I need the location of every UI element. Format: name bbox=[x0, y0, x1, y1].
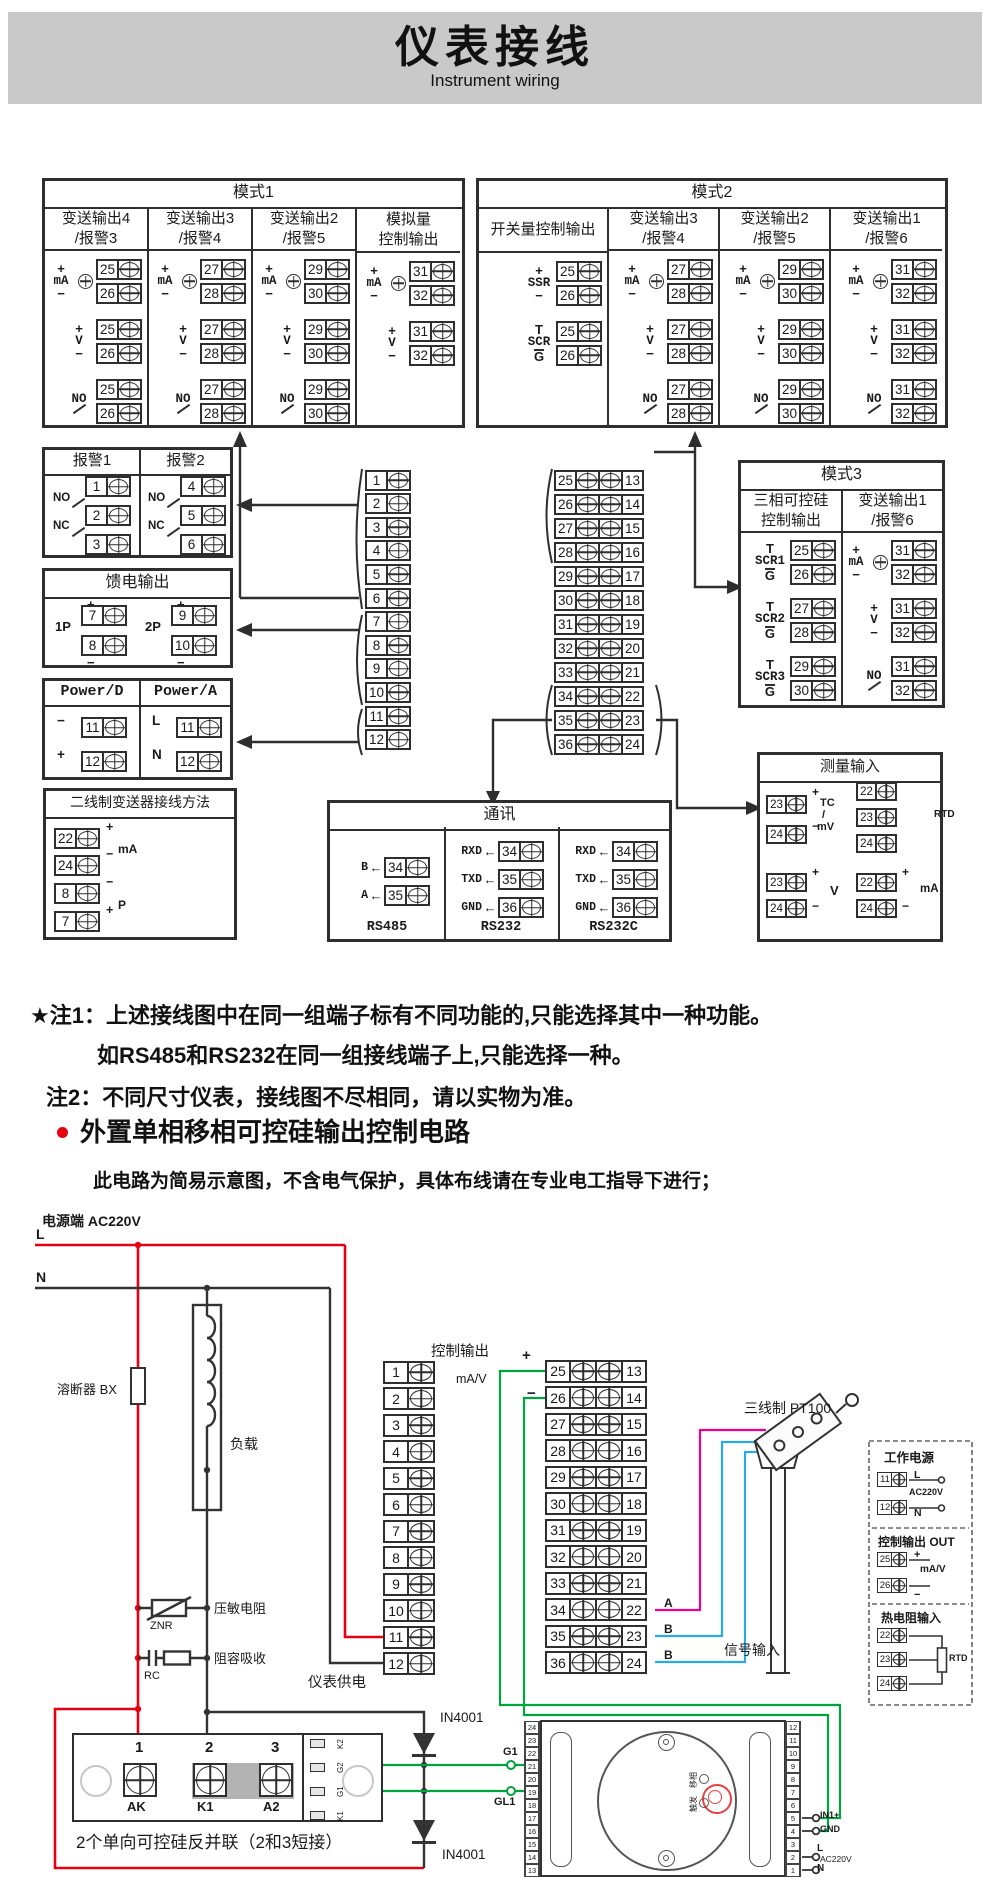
adjust-label: 触发 bbox=[688, 1796, 699, 1812]
terminal-screw-icon bbox=[386, 588, 411, 609]
terminal: 30 bbox=[304, 283, 350, 304]
terminal-number: 10 bbox=[365, 682, 388, 703]
polarity-bottom: − bbox=[757, 348, 765, 359]
terminal-number: 31 bbox=[891, 379, 914, 400]
column-header: 变送输出2/报警5 bbox=[253, 209, 355, 251]
column-title: 控制输出 bbox=[761, 511, 821, 531]
terminal-number: 22 bbox=[856, 782, 877, 801]
mode1-box: 模式1变送输出4/报警3+mA−2526+V−2526NO2526变送输出3/报… bbox=[42, 178, 465, 428]
signal-type-label: SCR bbox=[528, 335, 551, 349]
terminal: 22 bbox=[877, 1628, 907, 1643]
trigger-terminal: 15 bbox=[525, 1838, 539, 1851]
mode2-box-column: 开关量控制输出+SSR−2526TSCRG2526 bbox=[479, 209, 609, 427]
terminal: 5 bbox=[383, 1467, 435, 1490]
terminal-number: 10 bbox=[383, 1599, 409, 1622]
two-wire-title: 二线制变送器接线方法 bbox=[46, 791, 234, 819]
column-title: 三相可控硅 bbox=[753, 491, 828, 511]
terminal-number: 5 bbox=[180, 505, 203, 526]
terminal-screw-icon bbox=[407, 1361, 435, 1384]
scr-terminal-screw-icon bbox=[193, 1763, 227, 1797]
terminal: 11 bbox=[176, 717, 222, 738]
terminal-number: 27 bbox=[545, 1413, 571, 1436]
terminal: 25 bbox=[556, 321, 602, 342]
terminal: 28 bbox=[200, 343, 246, 364]
terminal-number: 28 bbox=[667, 283, 690, 304]
terminal-screw-icon bbox=[598, 614, 623, 635]
current-source-icon bbox=[873, 274, 888, 289]
gate-pad bbox=[310, 1739, 325, 1748]
comm-standard-label: RS485 bbox=[330, 920, 444, 935]
terminal-screw-icon bbox=[106, 534, 131, 555]
gate-pad-label: K1 bbox=[336, 1811, 345, 1821]
terminal: 22 bbox=[856, 873, 897, 892]
terminal-screw-icon bbox=[799, 403, 824, 424]
terminal: 5 bbox=[365, 564, 411, 585]
terminal: 11 bbox=[81, 717, 127, 738]
terminal: 27 bbox=[200, 319, 246, 340]
pt100-label: 三线制 PT100 bbox=[744, 1398, 831, 1418]
comm-row: TXD←35 bbox=[452, 869, 544, 890]
terminal: 35 bbox=[498, 869, 544, 890]
terminal-number: 18 bbox=[621, 1492, 647, 1515]
terminal: 12 bbox=[365, 729, 411, 750]
terminal-number: 29 bbox=[545, 1466, 571, 1489]
terminal-screw-icon bbox=[407, 1626, 435, 1649]
terminal: 28 bbox=[200, 283, 246, 304]
polarity-bottom: − bbox=[852, 288, 860, 299]
instrument-wiring-page: 仪表接线 Instrument wiring bbox=[0, 0, 990, 1898]
strip-row: 3119 bbox=[554, 614, 644, 635]
terminal: 31 bbox=[409, 321, 455, 342]
terminal-screw-icon bbox=[811, 598, 836, 619]
terminal-screw-icon bbox=[595, 1545, 623, 1568]
terminal-number: 30 bbox=[778, 283, 801, 304]
terminal: 11 bbox=[877, 1472, 907, 1487]
strip-row: 3321 bbox=[554, 662, 644, 683]
polarity-top: + bbox=[283, 323, 291, 334]
trigger-n-label: N bbox=[817, 1863, 824, 1874]
terminal: 27 bbox=[200, 379, 246, 400]
column-title: /报警6 bbox=[865, 229, 908, 249]
arrow-left-icon: ← bbox=[482, 844, 498, 859]
trigger-module: 移相触发 bbox=[540, 1720, 786, 1877]
terminal-number: 36 bbox=[545, 1651, 571, 1674]
power-polarity: L bbox=[152, 713, 160, 728]
terminal-screw-icon bbox=[201, 534, 226, 555]
terminal-screw-icon bbox=[595, 1386, 623, 1409]
strip-row: 2715 bbox=[554, 518, 644, 539]
terminal: 31 bbox=[891, 319, 937, 340]
diode-label: IN4001 bbox=[440, 1710, 484, 1725]
terminal-number: 25 bbox=[790, 540, 813, 561]
terminal-number: 21 bbox=[621, 662, 644, 683]
terminal-screw-icon bbox=[575, 494, 600, 515]
gate-pad bbox=[310, 1787, 325, 1796]
strip-row: 3523 bbox=[545, 1625, 647, 1648]
terminal-number: 34 bbox=[384, 857, 407, 878]
terminal-screw-icon bbox=[875, 899, 897, 918]
terminal: 29 bbox=[790, 656, 836, 677]
trigger-terminal: 2 bbox=[786, 1851, 800, 1864]
mv-label: mV bbox=[817, 821, 834, 833]
terminal-screw-icon bbox=[575, 686, 600, 707]
terminal: 23 bbox=[766, 795, 807, 814]
polarity-top: + bbox=[646, 323, 654, 334]
terminal-number: 4 bbox=[180, 476, 203, 497]
power-box: Power/DPower/A−11+12L11N12 bbox=[42, 678, 233, 780]
terminal-number: 29 bbox=[790, 656, 813, 677]
terminal-screw-icon bbox=[106, 505, 131, 526]
output-section: TSCR2G2728 bbox=[741, 591, 841, 649]
comm-row: GND←36 bbox=[452, 897, 544, 918]
terminal-number: 14 bbox=[621, 494, 644, 515]
terminal-screw-icon bbox=[386, 470, 411, 491]
terminal-screw-icon bbox=[912, 622, 937, 643]
terminal-screw-icon bbox=[117, 343, 142, 364]
terminal: 25 bbox=[877, 1552, 907, 1567]
terminal-screw-icon bbox=[405, 857, 430, 878]
terminal-number: 29 bbox=[304, 259, 327, 280]
terminal-screw-icon bbox=[386, 706, 411, 727]
power-d-title: Power/D bbox=[45, 681, 141, 705]
strip-row: 3220 bbox=[545, 1545, 647, 1568]
comm-signal-label: GND bbox=[566, 901, 596, 914]
terminal-screw-icon bbox=[912, 259, 937, 280]
terminal-screw-icon bbox=[102, 717, 127, 738]
mode2-box-column: 变送输出1/报警6+mA−3132+V−3132NO3132 bbox=[831, 209, 942, 427]
terminal-screw-icon bbox=[598, 470, 623, 491]
terminal-number: 27 bbox=[667, 379, 690, 400]
terminal-screw-icon bbox=[569, 1466, 597, 1489]
terminal: 27 bbox=[667, 259, 713, 280]
switch-icon bbox=[72, 498, 85, 508]
terminal-screw-icon bbox=[407, 1440, 435, 1463]
terminal-screw-icon bbox=[117, 379, 142, 400]
terminal-screw-icon bbox=[117, 259, 142, 280]
polarity-top: + bbox=[739, 263, 747, 274]
comm-signal-label: RXD bbox=[566, 845, 596, 858]
mode2-box: 模式2开关量控制输出+SSR−2526TSCRG2526变送输出3/报警4+mA… bbox=[476, 178, 948, 428]
terminal-number: 27 bbox=[200, 319, 223, 340]
output-section: NO3132 bbox=[843, 649, 942, 707]
terminal-screw-icon bbox=[785, 873, 807, 892]
polarity-minus: − bbox=[527, 1385, 536, 1402]
terminal-screw-icon bbox=[912, 598, 937, 619]
terminal-number: 25 bbox=[545, 1360, 571, 1383]
terminal: 10 bbox=[383, 1599, 435, 1622]
v-label: V bbox=[830, 883, 839, 898]
trigger-terminal: 18 bbox=[525, 1799, 539, 1812]
comm-row: A←35 bbox=[338, 885, 430, 906]
terminal-number: 30 bbox=[778, 403, 801, 424]
terminal-screw-icon bbox=[598, 662, 623, 683]
terminal: 27 bbox=[790, 598, 836, 619]
terminal-screw-icon bbox=[912, 319, 937, 340]
arrow-left-icon: ← bbox=[368, 888, 384, 903]
terminal-number: 27 bbox=[200, 259, 223, 280]
terminal-screw-icon bbox=[197, 751, 222, 772]
terminal-number: 31 bbox=[891, 540, 914, 561]
terminal: 23 bbox=[856, 808, 897, 827]
strip-row: 2917 bbox=[545, 1466, 647, 1489]
terminal-screw-icon bbox=[221, 283, 246, 304]
terminal-number: 32 bbox=[891, 283, 914, 304]
terminal-screw-icon bbox=[386, 564, 411, 585]
mode1-box-title: 模式1 bbox=[45, 181, 462, 209]
polarity-bottom: − bbox=[370, 290, 378, 301]
terminal-screw-icon bbox=[595, 1572, 623, 1595]
comm-signal-label: GND bbox=[452, 901, 482, 914]
note-1: ★注1：上述接线图中在同一组端子标有不同功能的,只能选择其中一种功能。 bbox=[30, 998, 772, 1030]
terminal-number: 31 bbox=[891, 656, 914, 677]
mode3-box-column: 变送输出1/报警6+mA−3132+V−3132NO3132 bbox=[843, 491, 942, 707]
no-label: NO bbox=[148, 492, 165, 504]
terminal: 30 bbox=[778, 403, 824, 424]
terminal-screw-icon bbox=[519, 841, 544, 862]
tc-slash: / bbox=[822, 809, 825, 821]
terminal: 24 bbox=[856, 834, 897, 853]
terminal: 22 bbox=[856, 782, 897, 801]
terminal-screw-icon bbox=[785, 899, 807, 918]
terminal-screw-icon bbox=[912, 403, 937, 424]
mounting-hole-icon bbox=[342, 1765, 374, 1797]
rtd-label: RTD bbox=[934, 809, 955, 820]
terminal-screw-icon bbox=[799, 283, 824, 304]
terminal-screw-icon bbox=[595, 1598, 623, 1621]
terminal: 32 bbox=[409, 345, 455, 366]
terminal-screw-icon bbox=[912, 564, 937, 585]
column-header: 变送输出1/报警6 bbox=[843, 491, 942, 533]
terminal-number: 15 bbox=[621, 518, 644, 539]
terminal: 25 bbox=[96, 319, 142, 340]
terminal-number: 13 bbox=[621, 470, 644, 491]
terminal-screw-icon bbox=[811, 564, 836, 585]
terminal: 28 bbox=[667, 343, 713, 364]
terminal-screw-icon bbox=[598, 566, 623, 587]
terminal-number: 30 bbox=[778, 343, 801, 364]
terminal-screw-icon bbox=[325, 283, 350, 304]
gate-pad bbox=[310, 1811, 325, 1820]
terminal-number: 3 bbox=[383, 1414, 409, 1437]
terminal-screw-icon bbox=[192, 605, 217, 626]
terminal-number: 34 bbox=[554, 686, 577, 707]
terminal-screw-icon bbox=[912, 283, 937, 304]
comm-row: GND←36 bbox=[566, 897, 658, 918]
arrow-left-icon: ← bbox=[482, 900, 498, 915]
polarity-top: + bbox=[535, 265, 543, 276]
rc-code: RC bbox=[144, 1670, 160, 1682]
terminal: 29 bbox=[304, 319, 350, 340]
trigger-terminal: 13 bbox=[525, 1864, 539, 1877]
terminal-number: 8 bbox=[383, 1546, 409, 1569]
terminal-screw-icon bbox=[386, 540, 411, 561]
terminal-number: 27 bbox=[200, 379, 223, 400]
terminal: 24 bbox=[766, 899, 807, 918]
terminal-screw-icon bbox=[75, 828, 100, 849]
terminal-number: 34 bbox=[498, 841, 521, 862]
terminal-number: 2 bbox=[383, 1387, 409, 1410]
terminal-number: 26 bbox=[556, 285, 579, 306]
varistor-label: 压敏电阻 bbox=[214, 1598, 266, 1617]
terminal-number: 29 bbox=[778, 319, 801, 340]
scr-terminal-screw-icon bbox=[259, 1763, 293, 1797]
vent-slot bbox=[550, 1732, 572, 1867]
terminal-number: 30 bbox=[554, 590, 577, 611]
terminal-screw-icon bbox=[598, 590, 623, 611]
terminal-screw-icon bbox=[221, 379, 246, 400]
adjust-pot-icon bbox=[699, 1774, 709, 1784]
terminal-number: 9 bbox=[365, 658, 388, 679]
column-title: 变送输出2 bbox=[270, 209, 338, 229]
adjust-label: 移相 bbox=[688, 1772, 699, 1788]
terminal-screw-icon bbox=[75, 911, 100, 932]
terminal: 5 bbox=[180, 505, 226, 526]
terminal-number: 30 bbox=[304, 403, 327, 424]
terminal-screw-icon bbox=[891, 1628, 907, 1643]
mode3-box-column: 三相可控硅控制输出TSCR1G2526TSCR2G2728TSCR3G2930 bbox=[741, 491, 843, 707]
output-section: NO2930 bbox=[253, 371, 355, 431]
polarity-top: + bbox=[628, 263, 636, 274]
strip-row: 3220 bbox=[554, 638, 644, 659]
polarity: + bbox=[902, 865, 909, 879]
mode3-box: 模式3三相可控硅控制输出TSCR1G2526TSCR2G2728TSCR3G29… bbox=[738, 460, 945, 708]
column-title: 变送输出3 bbox=[629, 209, 697, 229]
terminal-screw-icon bbox=[575, 710, 600, 731]
terminal: 26 bbox=[96, 403, 142, 424]
mav-label: mA/V bbox=[920, 1564, 946, 1575]
comm-standard-label: RS232 bbox=[444, 920, 558, 935]
polarity: + bbox=[106, 820, 113, 834]
terminal-screw-icon bbox=[598, 734, 623, 755]
terminal-number: 30 bbox=[545, 1492, 571, 1515]
terminal: 6 bbox=[383, 1493, 435, 1516]
terminal-number: 28 bbox=[554, 542, 577, 563]
signal-type-label: SCR1 bbox=[755, 554, 785, 568]
strip-row: 2816 bbox=[554, 542, 644, 563]
terminal-screw-icon bbox=[192, 635, 217, 656]
mav-unit-label: mA/V bbox=[456, 1372, 487, 1386]
terminal: 7 bbox=[81, 605, 127, 626]
scr-terminal-name: AK bbox=[127, 1799, 146, 1814]
terminal-screw-icon bbox=[595, 1519, 623, 1542]
terminal: 36 bbox=[498, 897, 544, 918]
terminal-screw-icon bbox=[405, 885, 430, 906]
terminal-number: 19 bbox=[621, 1519, 647, 1542]
terminal-screw-icon bbox=[407, 1414, 435, 1437]
terminal: 32 bbox=[891, 283, 937, 304]
terminal-number: 7 bbox=[81, 605, 104, 626]
wire-b-label: B bbox=[664, 1648, 673, 1662]
trigger-terminal: 1 bbox=[786, 1864, 800, 1877]
terminal-number: 30 bbox=[304, 343, 327, 364]
terminal-number: 12 bbox=[176, 751, 199, 772]
terminal-screw-icon bbox=[595, 1439, 623, 1462]
terminal-number: 22 bbox=[621, 686, 644, 707]
terminal-screw-icon bbox=[407, 1520, 435, 1543]
terminal: 11 bbox=[365, 706, 411, 727]
terminal-number: 24 bbox=[856, 834, 877, 853]
terminal-screw-icon bbox=[569, 1413, 597, 1436]
nc-label: NC bbox=[148, 520, 165, 532]
terminal-screw-icon bbox=[325, 259, 350, 280]
arrow-left-icon: ← bbox=[596, 900, 612, 915]
polarity: − bbox=[914, 1589, 920, 1601]
gate-pad-label: G1 bbox=[336, 1786, 345, 1797]
gate-wire-label: G1 bbox=[503, 1746, 518, 1758]
mode3-box-title: 模式3 bbox=[741, 463, 942, 491]
terminal-screw-icon bbox=[799, 319, 824, 340]
ma-label: mA bbox=[920, 883, 939, 895]
terminal: 23 bbox=[766, 873, 807, 892]
comm-group: RXD←34TXD←35GND←36RS232C bbox=[558, 827, 669, 939]
terminal: 1 bbox=[85, 476, 131, 497]
polarity-top: + bbox=[870, 602, 878, 613]
polarity-bottom: − bbox=[628, 288, 636, 299]
terminal: 9 bbox=[365, 658, 411, 679]
arrow-left-icon: ← bbox=[482, 872, 498, 887]
terminal-number: 20 bbox=[621, 1545, 647, 1568]
terminal-screw-icon bbox=[598, 518, 623, 539]
trigger-terminal: 23 bbox=[525, 1734, 539, 1747]
note-2: 注2：不同尺寸仪表，接线图不尽相同，请以实物为准。 bbox=[46, 1080, 586, 1112]
ma-label: mA bbox=[118, 842, 137, 856]
terminal: 34 bbox=[612, 841, 658, 862]
scr-terminal-name: A2 bbox=[263, 1799, 280, 1814]
mounting-hole-icon bbox=[80, 1765, 112, 1797]
column-title: /报警3 bbox=[75, 229, 118, 249]
terminal-number: 26 bbox=[790, 564, 813, 585]
strip-row: 3422 bbox=[554, 686, 644, 707]
terminal-screw-icon bbox=[386, 611, 411, 632]
trigger-terminal: 9 bbox=[786, 1760, 800, 1773]
terminal-number: 11 bbox=[365, 706, 388, 727]
terminal-number: 18 bbox=[621, 590, 644, 611]
terminal-screw-icon bbox=[430, 261, 455, 282]
column-title: 变送输出4 bbox=[62, 209, 130, 229]
terminal-screw-icon bbox=[875, 808, 897, 827]
alarm2-title: 报警2 bbox=[141, 450, 230, 474]
terminal-screw-icon bbox=[386, 635, 411, 656]
strip-row: 3321 bbox=[545, 1572, 647, 1595]
signal-type-label: SCR2 bbox=[755, 612, 785, 626]
terminal: 3 bbox=[383, 1414, 435, 1437]
column-header: 模拟量控制输出 bbox=[357, 209, 460, 253]
terminal-number: 32 bbox=[891, 564, 914, 585]
terminal: 31 bbox=[891, 379, 937, 400]
power-source-label: 电源端 AC220V bbox=[42, 1211, 141, 1231]
tc-label: TC bbox=[820, 797, 835, 809]
terminal-screw-icon bbox=[221, 259, 246, 280]
terminal-number: 23 bbox=[621, 1625, 647, 1648]
strip-row: 3624 bbox=[545, 1651, 647, 1674]
terminal-number: 17 bbox=[621, 566, 644, 587]
terminal-screw-icon bbox=[221, 403, 246, 424]
polarity-bottom: G bbox=[765, 626, 775, 639]
terminal-number: 21 bbox=[621, 1572, 647, 1595]
terminal-number: 5 bbox=[365, 564, 388, 585]
output-section: +V−3132 bbox=[831, 311, 942, 371]
terminal-number: 12 bbox=[365, 729, 388, 750]
terminal-screw-icon bbox=[595, 1651, 623, 1674]
terminal: 28 bbox=[667, 403, 713, 424]
column-title: 开关量控制输出 bbox=[490, 220, 595, 240]
terminal: 10 bbox=[365, 682, 411, 703]
terminal-number: 32 bbox=[891, 343, 914, 364]
terminal-number: 2 bbox=[85, 505, 108, 526]
strip-row: 3119 bbox=[545, 1519, 647, 1542]
trigger-terminal: 24 bbox=[525, 1721, 539, 1734]
terminal-screw-icon bbox=[569, 1572, 597, 1595]
